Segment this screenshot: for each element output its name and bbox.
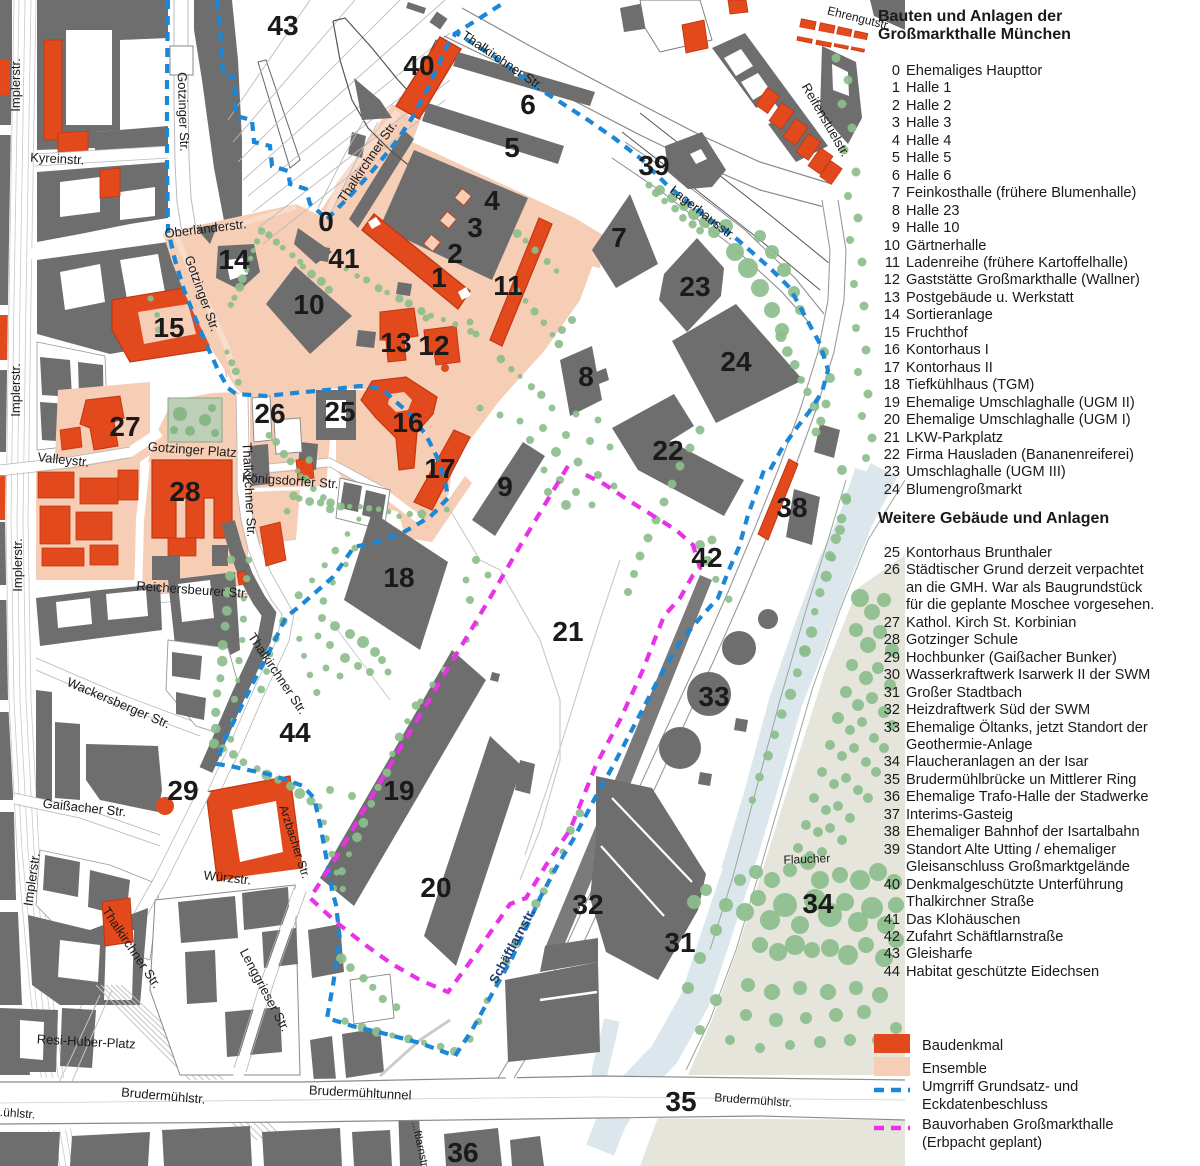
svg-text:17: 17 [424, 453, 455, 484]
svg-text:40: 40 [403, 50, 434, 81]
svg-text:33: 33 [698, 681, 729, 712]
svg-text:Implerstr.: Implerstr. [8, 58, 23, 111]
svg-text:9: 9 [497, 471, 513, 502]
svg-text:12: 12 [418, 330, 449, 361]
svg-text:38: 38 [776, 492, 807, 523]
svg-text:2: 2 [447, 238, 463, 269]
svg-text:21: 21 [552, 616, 583, 647]
svg-text:28: 28 [169, 476, 200, 507]
svg-text:3: 3 [467, 212, 483, 243]
svg-text:34: 34 [802, 888, 834, 919]
svg-text:15: 15 [153, 312, 184, 343]
svg-text:Gotzinger Str.: Gotzinger Str. [175, 72, 193, 152]
svg-text:Implerstr.: Implerstr. [8, 363, 23, 416]
svg-text:39: 39 [638, 150, 669, 181]
svg-text:18: 18 [383, 562, 414, 593]
svg-text:20: 20 [420, 872, 451, 903]
svg-text:42: 42 [691, 542, 722, 573]
svg-text:23: 23 [679, 271, 710, 302]
svg-text:0: 0 [318, 206, 334, 237]
svg-text:44: 44 [279, 717, 311, 748]
svg-text:7: 7 [611, 222, 627, 253]
svg-text:11: 11 [493, 270, 523, 301]
svg-text:4: 4 [484, 185, 500, 216]
svg-text:Kyreinstr.: Kyreinstr. [30, 150, 85, 168]
svg-text:22: 22 [652, 435, 683, 466]
svg-text:8: 8 [578, 361, 594, 392]
svg-text:36: 36 [447, 1137, 478, 1166]
svg-text:14: 14 [218, 244, 250, 275]
svg-text:35: 35 [665, 1086, 696, 1117]
svg-text:41: 41 [328, 243, 359, 274]
svg-text:10: 10 [293, 289, 324, 320]
svg-text:5: 5 [504, 132, 520, 163]
svg-text:Flaucher: Flaucher [783, 851, 830, 867]
svg-text:32: 32 [572, 889, 603, 920]
svg-text:31: 31 [664, 927, 695, 958]
svg-text:24: 24 [720, 346, 752, 377]
svg-text:Implerstr.: Implerstr. [10, 538, 25, 591]
svg-text:25: 25 [324, 396, 355, 427]
svg-text:1: 1 [431, 262, 447, 293]
svg-text:26: 26 [254, 398, 285, 429]
svg-text:...ühlstr.: ...ühlstr. [0, 1105, 36, 1122]
svg-text:19: 19 [383, 775, 414, 806]
svg-text:43: 43 [267, 10, 298, 41]
svg-text:27: 27 [109, 411, 140, 442]
svg-text:6: 6 [520, 89, 536, 120]
svg-text:13: 13 [380, 327, 411, 358]
svg-text:29: 29 [167, 775, 198, 806]
svg-text:16: 16 [392, 407, 423, 438]
